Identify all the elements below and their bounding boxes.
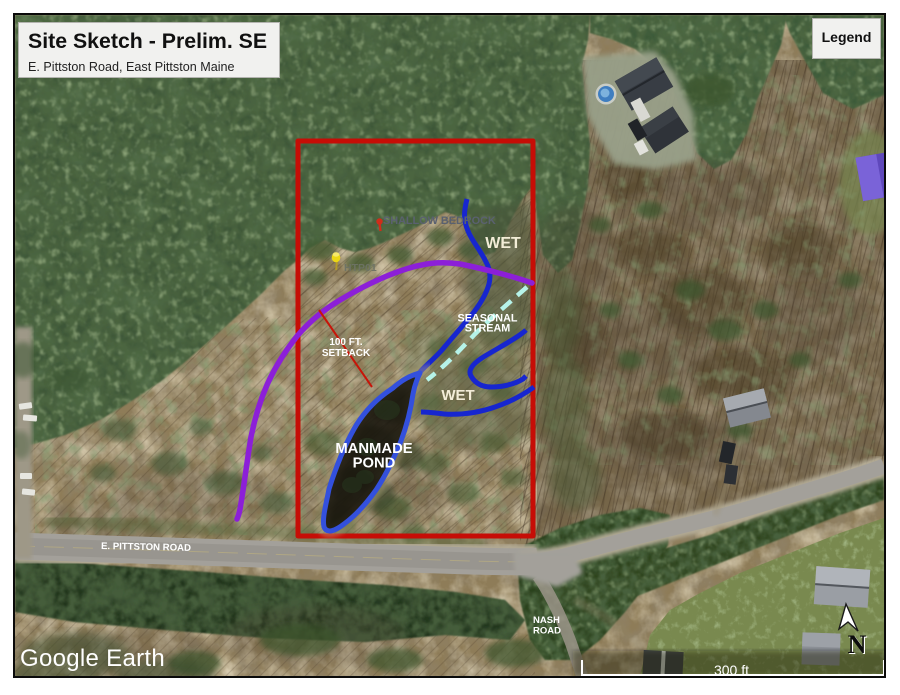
svg-text:SETBACK: SETBACK <box>322 348 371 359</box>
svg-text:NASH: NASH <box>533 615 560 626</box>
svg-text:N: N <box>848 630 867 659</box>
svg-text:100 FT.: 100 FT. <box>329 337 363 348</box>
svg-text:STREAM: STREAM <box>465 323 511 335</box>
svg-text:HTP01: HTP01 <box>344 262 377 274</box>
svg-text:POND: POND <box>353 456 396 472</box>
svg-text:E. PITTSTON ROAD: E. PITTSTON ROAD <box>101 541 191 554</box>
svg-text:WET: WET <box>441 387 474 404</box>
svg-text:WET: WET <box>485 235 521 252</box>
svg-text:ROAD: ROAD <box>533 626 561 637</box>
svg-text:Google Earth: Google Earth <box>20 645 165 672</box>
svg-text:300 ft: 300 ft <box>714 662 749 676</box>
svg-text:SHALLOW BEDROCK: SHALLOW BEDROCK <box>383 215 496 227</box>
